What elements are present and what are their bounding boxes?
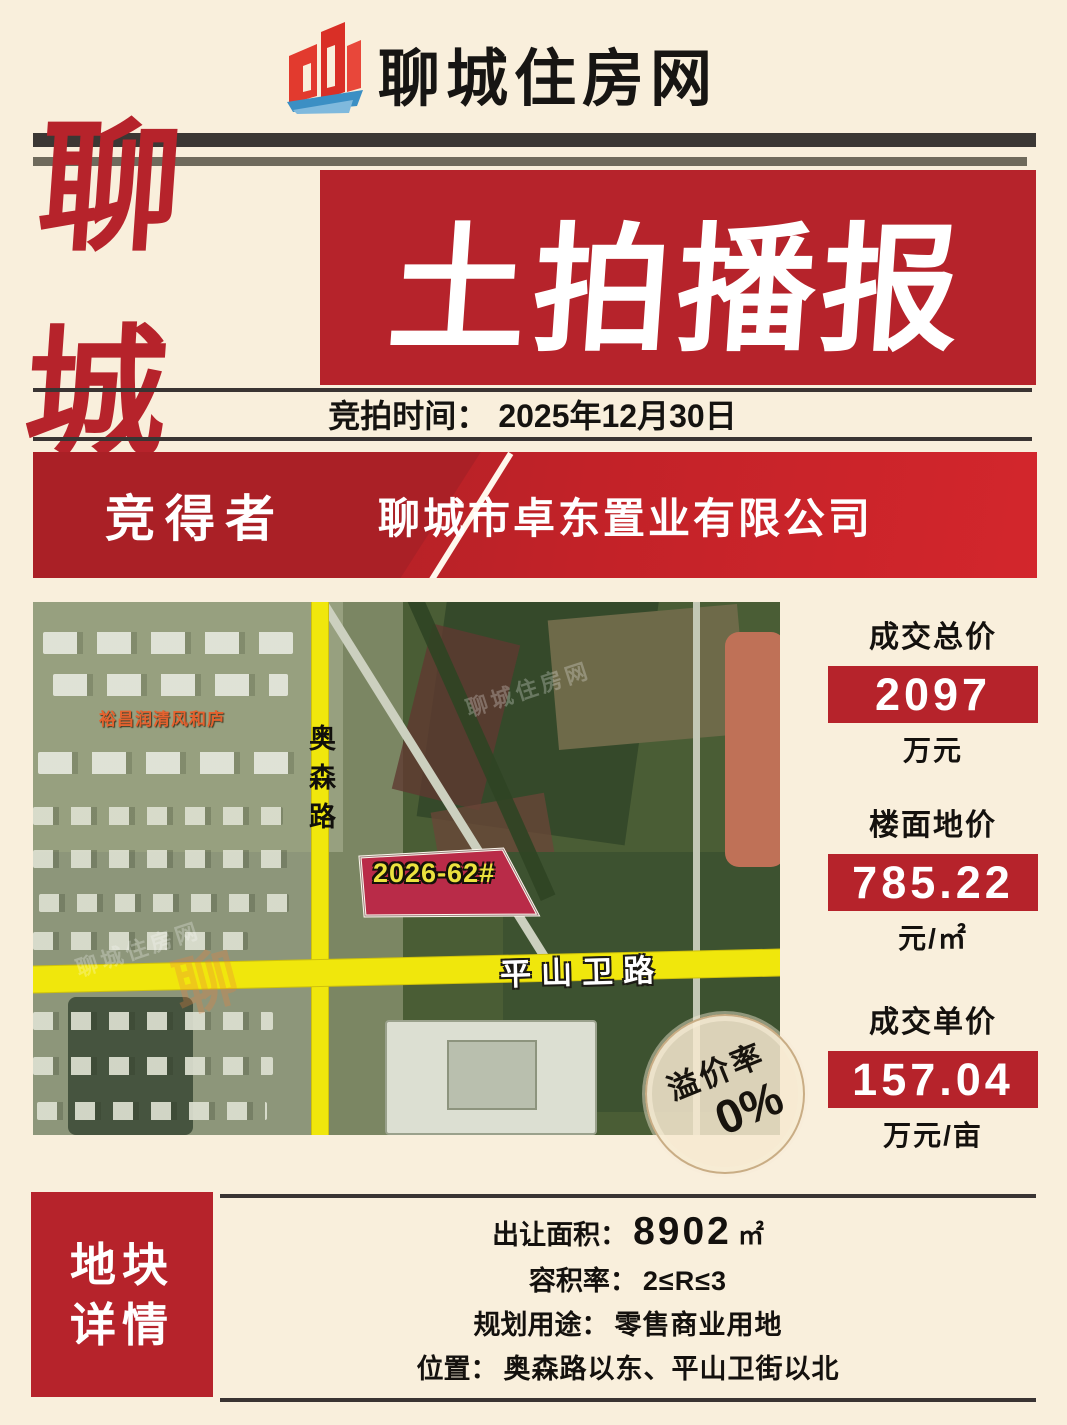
map-community-label: 裕昌润清风和庐 [99,705,225,730]
auction-time-value: 2025年12月30日 [498,391,736,437]
stat-unit-price: 成交单价 157.04 万元/亩 [828,997,1038,1154]
detail-row-location: 位置： 奥森路以东、平山卫街以北 [417,1347,840,1386]
premium-rate-badge: 溢价率 0% [645,1014,805,1174]
hero-city-title: 聊城 [25,170,327,385]
detail-row-plot-ratio: 容积率： 2≤R≤3 [529,1259,727,1298]
detail-label: 容积率： [529,1259,637,1298]
auction-time-row: 竞拍时间： 2025年12月30日 [33,391,1032,437]
map-building-row [37,1102,267,1120]
map-road-aosen [312,602,328,1135]
details-title-line1: 地块 [70,1242,174,1288]
detail-unit: ㎡ [738,1215,764,1252]
details-title-line2: 详情 [70,1302,174,1348]
stat-unit: 万元 [828,729,1038,769]
detail-row-planned-use: 规划用途： 零售商业用地 [474,1303,783,1342]
stat-total-price: 成交总价 2097 万元 [828,612,1038,769]
map-building-row [33,807,283,825]
stat-value-box: 157.04 [828,1051,1038,1108]
map-parcel-label: 2026-62# [373,858,495,889]
stat-label: 楼面地价 [828,800,1038,844]
winner-banner: 竞得者 聊城市卓东置业有限公司 [33,452,1037,578]
stat-value-box: 785.22 [828,854,1038,911]
map-building-row [39,894,289,912]
stat-value-box: 2097 [828,666,1038,723]
detail-value: 零售商业用地 [615,1303,783,1342]
hero-banner-title: 土拍播报 [383,178,973,378]
details-rows: 出让面积： 8902 ㎡ 容积率： 2≤R≤3 规划用途： 零售商业用地 位置：… [220,1198,1036,1398]
map-large-building-roof [447,1040,537,1110]
winner-label: 竞得者 [105,452,285,578]
site-title: 聊城住房网 [378,28,718,118]
land-auction-poster: 聊城住房网 聊城 土拍播报 竞拍时间： 2025年12月30日 竞得者 聊城市卓… [0,0,1067,1425]
stat-floor-price: 楼面地价 785.22 元/㎡ [828,800,1038,957]
detail-label: 规划用途： [474,1303,609,1342]
stat-unit: 万元/亩 [828,1114,1038,1154]
map-building-row [43,632,293,654]
hero-banner: 土拍播报 [320,170,1036,385]
stat-unit: 元/㎡ [828,917,1038,957]
map-building-row [33,850,288,868]
winner-company-name: 聊城市卓东置业有限公司 [378,452,873,578]
stat-label: 成交单价 [828,997,1038,1041]
map-building-row [33,1057,273,1075]
auction-time-label: 竞拍时间： [328,391,488,437]
stat-label: 成交总价 [828,612,1038,656]
map-sports-track [725,632,780,867]
detail-value: 奥森路以东、平山卫街以北 [504,1347,840,1386]
details-divider-bottom [220,1398,1036,1402]
detail-value: 2≤R≤3 [643,1266,727,1297]
detail-label: 位置： [417,1347,498,1386]
map-building-row [53,674,288,696]
map-vertical-road-label: 奥森路 [301,724,340,841]
time-divider-bottom [33,437,1032,441]
map-horizontal-road-label: 平山卫路 [430,943,733,996]
detail-value: 8902 [633,1210,732,1254]
details-title-box: 地块 详情 [31,1192,213,1397]
map-building-row [38,752,298,774]
detail-label: 出让面积： [492,1213,627,1252]
detail-row-area: 出让面积： 8902 ㎡ [492,1210,764,1254]
map-large-building [385,1020,597,1135]
